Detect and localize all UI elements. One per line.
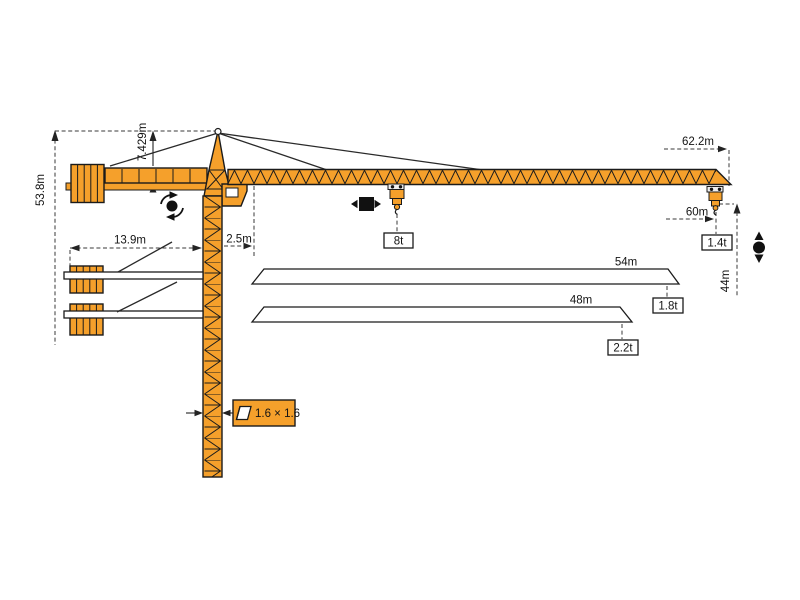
- operator-cab: [222, 184, 247, 206]
- hook-radius-label: 60m: [686, 207, 708, 219]
- jib-tie-2: [218, 133, 483, 170]
- max-radius-label: 62.2m: [682, 136, 714, 148]
- crane-diagram-canvas: 53.8m 7.429m 13.9m 2.5m 62.2m 60m 44m: [0, 0, 800, 600]
- jib-variant-length-label: 54m: [615, 257, 637, 269]
- jib-variant-48m: 48m 2.2t: [252, 295, 638, 356]
- jib-variant-length-label: 48m: [570, 295, 592, 307]
- arrow-up-icon: [150, 131, 157, 142]
- slewing-icon: [161, 191, 183, 221]
- counter-jib-tie: [110, 133, 218, 166]
- mast-section-label: 1.6 × 1.6: [255, 408, 300, 420]
- tower-mast: [203, 196, 222, 477]
- arrow-left-icon: [70, 245, 80, 251]
- overall-height-label: 53.8m: [35, 174, 47, 206]
- apex-pivot: [215, 129, 221, 135]
- jib-lattice: [228, 170, 716, 185]
- jib-variant-load-label: 2.2t: [613, 343, 633, 355]
- tie-bars: [110, 133, 483, 171]
- counter-jib-radius-label: 13.9m: [114, 235, 146, 247]
- arrow-right-icon: [193, 245, 203, 251]
- leader-line: [117, 282, 177, 312]
- counter-jib: [66, 165, 207, 203]
- counterweight-block: [70, 304, 103, 335]
- jib-variant-bar: [252, 269, 679, 284]
- jib-variant-load-label: 1.8t: [658, 301, 678, 313]
- tip-load-callout: 1.4t: [702, 235, 732, 250]
- max-load-label: 8t: [394, 236, 404, 248]
- leader-line: [118, 242, 172, 272]
- hook-icon: [713, 206, 718, 211]
- hoist-icon: [753, 232, 765, 264]
- cab-window: [226, 188, 238, 197]
- jib-tie-1: [218, 133, 330, 171]
- jib-variant-54m: 54m 1.8t: [252, 257, 683, 314]
- tip-load-label: 1.4t: [707, 238, 727, 250]
- jib-variant-bar: [252, 307, 632, 322]
- min-radius-label: 2.5m: [226, 234, 252, 246]
- counterweight-block: [71, 165, 104, 203]
- main-jib: [228, 170, 731, 185]
- trolley-hook: [388, 184, 404, 215]
- arrow-up-icon: [52, 130, 59, 141]
- max-load-callout: 8t: [384, 233, 413, 248]
- crane-diagram: 53.8m 7.429m 13.9m 2.5m 62.2m 60m 44m: [0, 0, 800, 600]
- hook-height-label: 44m: [720, 270, 732, 292]
- arrow-right-icon: [718, 146, 727, 152]
- ballast-rail: [64, 272, 203, 279]
- hook-icon: [394, 204, 399, 209]
- ballast-rail: [64, 311, 203, 318]
- ballast-variant-1: [64, 242, 203, 293]
- tip-trolley-hook: [707, 187, 723, 216]
- trolley-travel-icon: [351, 197, 381, 211]
